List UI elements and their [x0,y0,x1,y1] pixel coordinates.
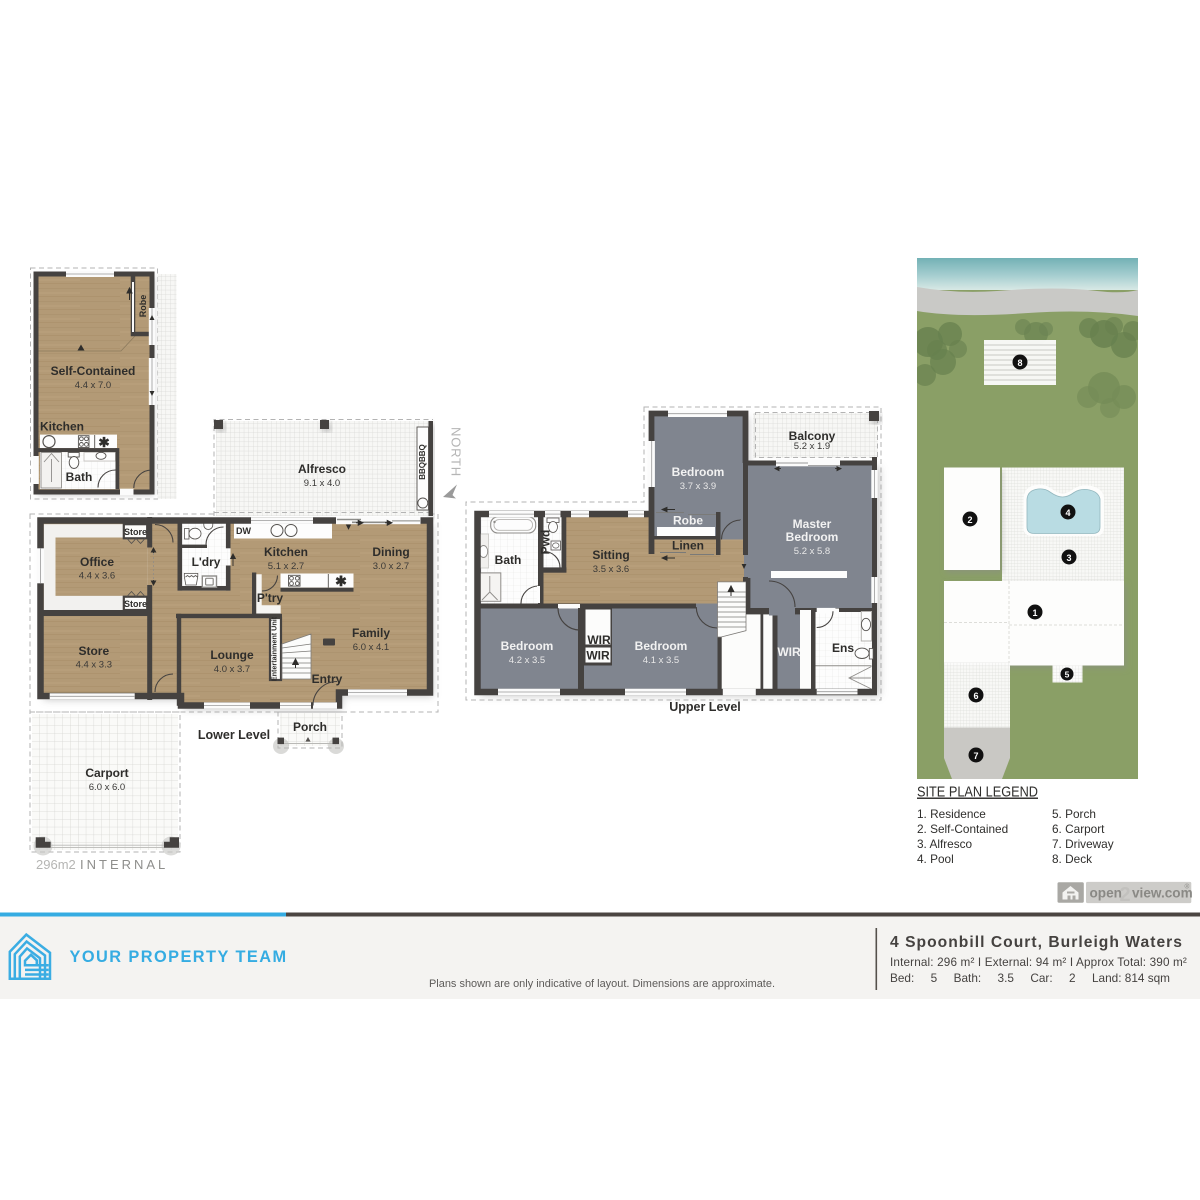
svg-text:SITE PLAN LEGEND: SITE PLAN LEGEND [917,785,1038,801]
svg-text:4.4 x 3.3: 4.4 x 3.3 [76,660,112,671]
svg-text:3.0 x 2.7: 3.0 x 2.7 [373,561,409,572]
svg-text:1: 1 [1032,608,1037,618]
svg-text:2. Self-Contained: 2. Self-Contained [917,822,1008,836]
svg-text:4: 4 [1065,508,1070,518]
svg-text:4 Spoonbill Court, Burleigh Wa: 4 Spoonbill Court, Burleigh Waters [890,934,1183,951]
svg-text:4. Pool: 4. Pool [917,852,954,866]
svg-text:Bedroom: Bedroom [501,639,554,653]
svg-text:2: 2 [1120,884,1131,906]
svg-text:WIR: WIR [586,649,610,663]
svg-text:5: 5 [1065,670,1070,680]
svg-text:3.7 x 3.9: 3.7 x 3.9 [680,481,716,492]
svg-text:Robe: Robe [673,514,703,528]
svg-text:Dining: Dining [372,545,409,559]
svg-text:2: 2 [967,515,972,525]
svg-text:6: 6 [973,691,978,701]
svg-text:Lounge: Lounge [210,648,254,662]
svg-text:5.2 x 5.8: 5.2 x 5.8 [794,546,830,557]
svg-text:Pwd: Pwd [539,530,553,555]
svg-text:6.0 x 6.0: 6.0 x 6.0 [89,782,125,793]
svg-text:Bedroom: Bedroom [672,465,725,479]
svg-text:Store: Store [78,644,109,658]
svg-text:L'dry: L'dry [192,555,221,569]
svg-text:open: open [1090,886,1122,901]
svg-text:Alfresco: Alfresco [298,462,346,476]
svg-text:6. Carport: 6. Carport [1052,822,1105,836]
svg-text:296m2: 296m2 [36,857,76,872]
svg-text:P'try: P'try [257,591,284,605]
svg-text:Family: Family [352,626,390,640]
svg-text:Bedroom: Bedroom [786,530,839,544]
svg-text:6.0 x 4.1: 6.0 x 4.1 [353,642,389,653]
svg-text:Entertainment Unit: Entertainment Unit [270,616,279,681]
svg-text:Office: Office [80,555,114,569]
svg-text:Porch: Porch [293,720,327,734]
svg-text:7: 7 [973,751,978,761]
svg-text:NORTH: NORTH [449,427,464,477]
svg-text:Ens: Ens [832,641,854,655]
svg-text:Bath: Bath [495,553,522,567]
svg-text:9.1 x 4.0: 9.1 x 4.0 [304,478,340,489]
svg-text:✱: ✱ [98,435,110,450]
svg-text:1. Residence: 1. Residence [917,807,986,821]
svg-text:Internal: 296 m² I External: 9: Internal: 296 m² I External: 94 m² I App… [890,955,1187,969]
svg-text:WIR: WIR [777,645,801,659]
svg-text:7. Driveway: 7. Driveway [1052,837,1114,851]
svg-text:3. Alfresco: 3. Alfresco [917,837,973,851]
svg-text:Self-Contained: Self-Contained [51,364,136,378]
svg-text:Sitting: Sitting [592,548,629,562]
svg-text:5. Porch: 5. Porch [1052,807,1096,821]
svg-text:Kitchen: Kitchen [40,420,84,434]
svg-text:3.5 x 3.6: 3.5 x 3.6 [593,564,629,575]
svg-text:Master: Master [793,517,832,531]
svg-text:8. Deck: 8. Deck [1052,852,1092,866]
svg-text:3: 3 [1066,553,1071,563]
svg-text:Kitchen: Kitchen [264,545,308,559]
svg-text:Carport: Carport [85,766,128,780]
svg-text:Bed: 5 Bath: 3.5: Bed: 5 Bath: 3.5 Car: 2 Land: 814 sqm [890,971,1170,985]
svg-text:Lower Level: Lower Level [198,728,270,742]
svg-text:Linen: Linen [672,539,704,553]
svg-text:4.0 x 3.7: 4.0 x 3.7 [214,664,250,675]
svg-text:®: ® [1185,883,1190,891]
svg-text:BBQBBQ: BBQBBQ [418,444,427,480]
svg-text:Robe: Robe [138,295,148,318]
svg-text:4.1 x 3.5: 4.1 x 3.5 [643,655,679,666]
svg-text:4.2 x 3.5: 4.2 x 3.5 [509,655,545,666]
svg-text:5.1 x 2.7: 5.1 x 2.7 [268,561,304,572]
svg-text:Store: Store [124,599,147,609]
svg-text:✱: ✱ [335,573,347,589]
svg-text:5.2 x 1.9: 5.2 x 1.9 [794,441,830,452]
svg-text:Bedroom: Bedroom [635,639,688,653]
svg-text:Plans shown are only indicativ: Plans shown are only indicative of layou… [429,978,775,990]
svg-text:8: 8 [1017,358,1022,368]
svg-text:Bath: Bath [66,470,93,484]
svg-text:INTERNAL: INTERNAL [80,857,168,872]
svg-text:YOUR PROPERTY TEAM: YOUR PROPERTY TEAM [70,947,288,966]
svg-text:4.4 x 7.0: 4.4 x 7.0 [75,380,111,391]
svg-text:Store: Store [124,527,147,537]
svg-text:Upper Level: Upper Level [669,700,741,714]
svg-text:4.4 x 3.6: 4.4 x 3.6 [79,571,115,582]
svg-text:DW: DW [236,526,251,536]
